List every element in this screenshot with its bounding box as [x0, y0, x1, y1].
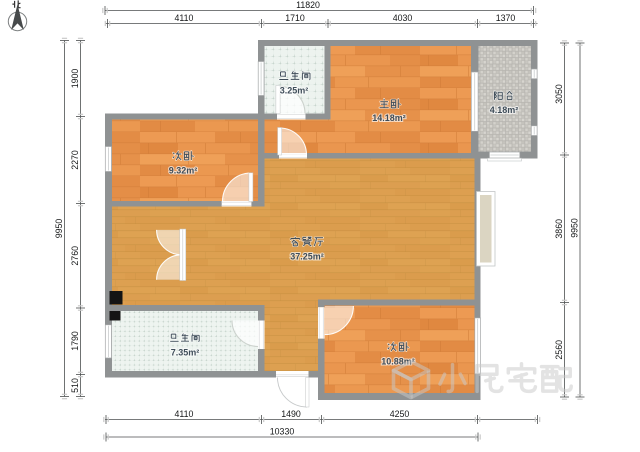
svg-text:9950: 9950 — [570, 218, 580, 238]
svg-text:3860: 3860 — [554, 219, 564, 239]
svg-text:10330: 10330 — [270, 427, 295, 437]
svg-text:14.18m²: 14.18m² — [372, 113, 406, 123]
svg-text:2760: 2760 — [70, 246, 80, 266]
svg-text:4030: 4030 — [393, 13, 413, 23]
svg-text:3050: 3050 — [554, 84, 564, 104]
svg-text:4250: 4250 — [390, 409, 410, 419]
svg-text:9950: 9950 — [54, 219, 64, 239]
svg-text:2560: 2560 — [554, 340, 564, 360]
svg-text:510: 510 — [70, 378, 80, 393]
svg-text:1900: 1900 — [70, 69, 80, 89]
svg-text:9.32m²: 9.32m² — [169, 166, 198, 176]
svg-text:7.35m²: 7.35m² — [171, 348, 200, 358]
svg-text:4.18m²: 4.18m² — [490, 105, 519, 115]
svg-text:37.25m²: 37.25m² — [290, 252, 324, 262]
svg-text:1790: 1790 — [70, 331, 80, 351]
svg-text:4110: 4110 — [175, 13, 194, 23]
svg-text:2270: 2270 — [70, 150, 80, 170]
svg-text:4110: 4110 — [175, 409, 194, 419]
svg-text:1370: 1370 — [496, 13, 516, 23]
svg-text:1490: 1490 — [281, 409, 301, 419]
svg-text:1710: 1710 — [285, 13, 305, 23]
svg-text:11820: 11820 — [296, 0, 320, 10]
svg-text:3.25m²: 3.25m² — [280, 86, 309, 96]
